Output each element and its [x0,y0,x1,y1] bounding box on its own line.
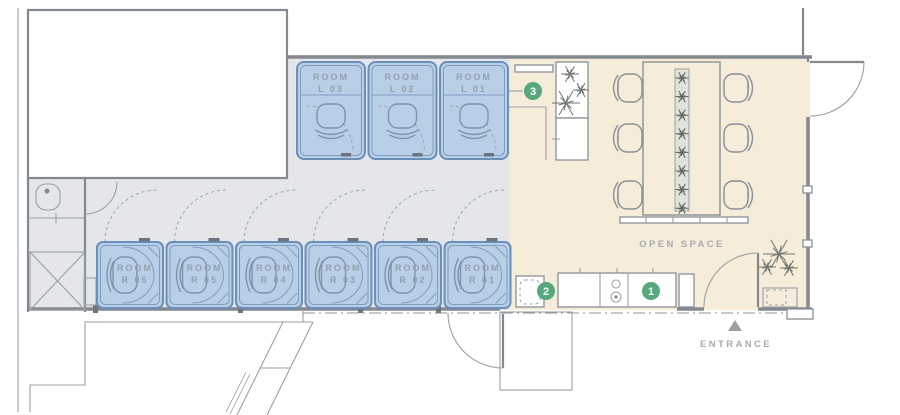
open-space-label: OPEN SPACE [639,239,725,250]
room-label: ROOM [326,263,362,273]
floor-plan-page: ROOML 03ROOML 02ROOML 01 ROOMR 06ROOMR 0… [0,0,900,415]
bench [620,217,748,223]
room-label: ROOM [465,263,501,273]
door-leaf-mark [209,238,220,242]
chair-icon [317,104,345,128]
top-right-door [810,62,864,116]
vestibule [448,312,572,390]
marker-1: 1 [642,282,660,300]
door-leaf-mark [487,238,498,242]
door-leaf-mark [413,153,423,157]
marker-2-number: 2 [543,286,549,298]
room-label: ROOM [395,263,431,273]
room-number: R 04 [260,275,287,285]
door-leaf-mark [139,238,150,242]
wall-shelf [515,65,553,72]
room-label: ROOM [456,72,492,82]
entrance-mat [787,309,813,319]
room-number: R 01 [469,275,496,285]
room-number: R 03 [330,275,357,285]
room-number: L 01 [461,84,487,94]
floor-plan-svg: ROOML 03ROOML 02ROOML 01 ROOMR 06ROOMR 0… [0,0,900,415]
room-number: R 02 [399,275,426,285]
room-label: ROOM [385,72,421,82]
escalator [226,322,313,415]
door-leaf-mark [417,238,428,242]
door-leaf-mark [278,238,289,242]
door-leaf-mark [348,238,359,242]
room-l-01: ROOML 01 [440,62,508,159]
room-number: R 06 [121,275,148,285]
cabinet [556,118,588,160]
chair-icon [389,104,417,128]
marker-1-number: 1 [648,286,654,298]
entrance-arrow-icon [728,320,742,331]
entrance-label: ENTRANCE [700,339,772,350]
marker-3: 3 [524,82,542,100]
room-number: L 02 [390,84,416,94]
room-l-02: ROOML 02 [369,62,437,159]
door-leaf-mark [484,153,494,157]
marker-2: 2 [537,282,555,300]
adjacent-room [28,10,287,178]
door-swing-arc [448,313,503,368]
room-label: ROOM [187,263,223,273]
rooms-top-row: ROOML 03ROOML 02ROOML 01 [297,62,508,159]
room-number: R 05 [191,275,218,285]
marker-3-number: 3 [530,86,536,98]
room-l-03: ROOML 03 [297,62,365,159]
room-number: L 03 [318,84,344,94]
open-space-table [614,62,753,223]
door-leaf-mark [341,153,351,157]
room-label: ROOM [256,263,292,273]
room-label: ROOM [117,263,153,273]
room-label: ROOM [313,72,349,82]
chair-icon [460,104,488,128]
